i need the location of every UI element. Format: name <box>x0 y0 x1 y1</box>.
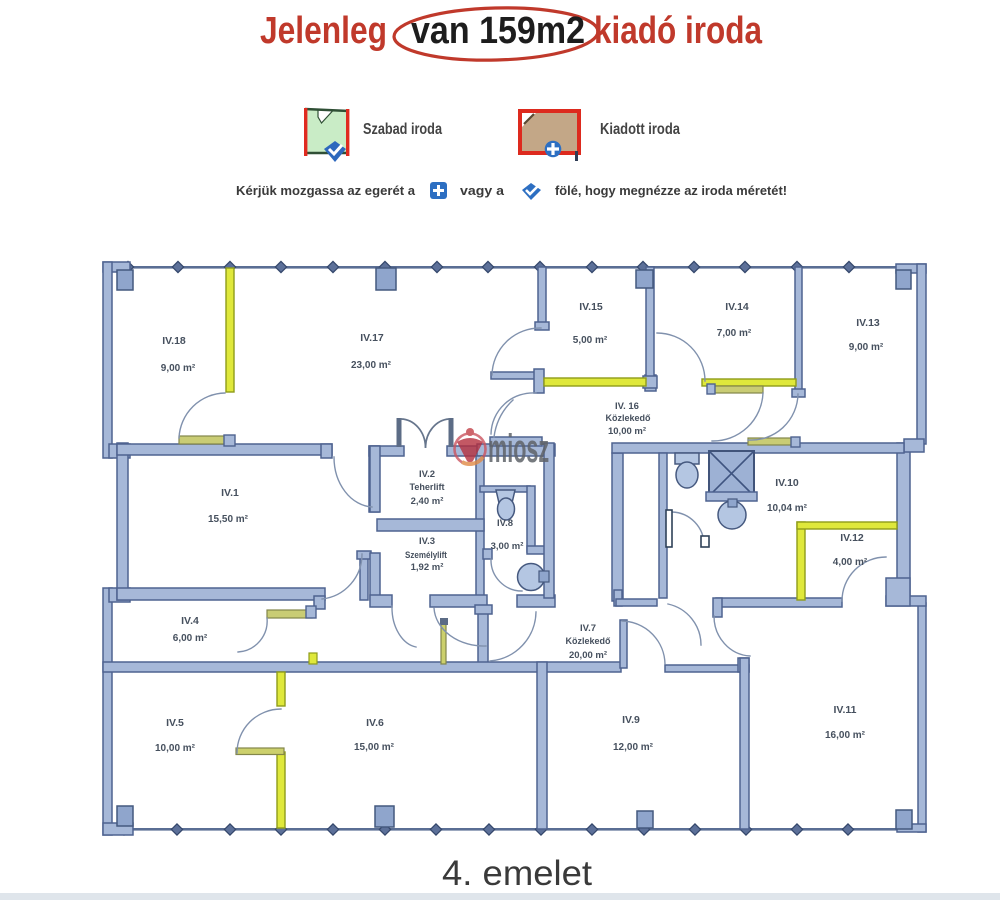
svg-text:10,00 m²: 10,00 m² <box>608 426 646 437</box>
svg-text:3,00 m²: 3,00 m² <box>491 541 524 552</box>
svg-text:15,50 m²: 15,50 m² <box>208 514 249 525</box>
svg-text:4. emelet: 4. emelet <box>442 854 592 893</box>
svg-text:5,00 m²: 5,00 m² <box>573 335 608 346</box>
svg-text:15,00 m²: 15,00 m² <box>354 742 395 753</box>
svg-text:20,00 m²: 20,00 m² <box>569 650 607 661</box>
svg-text:IV.6: IV.6 <box>366 717 384 729</box>
svg-text:kiadó iroda: kiadó iroda <box>594 10 763 52</box>
svg-text:Közlekedő: Közlekedő <box>566 636 611 646</box>
svg-text:IV.8: IV.8 <box>497 518 513 529</box>
svg-text:IV.12: IV.12 <box>840 532 864 544</box>
svg-text:van 159m2: van 159m2 <box>411 10 585 52</box>
svg-text:2,40 m²: 2,40 m² <box>411 496 444 507</box>
svg-text:IV.11: IV.11 <box>834 704 857 716</box>
svg-text:1,92 m²: 1,92 m² <box>411 562 444 573</box>
svg-text:IV.5: IV.5 <box>166 717 184 729</box>
svg-text:IV.4: IV.4 <box>181 615 199 627</box>
svg-text:12,00 m²: 12,00 m² <box>613 742 654 753</box>
svg-text:IV.15: IV.15 <box>579 301 603 313</box>
svg-text:9,00 m²: 9,00 m² <box>849 342 884 353</box>
svg-text:IV.17: IV.17 <box>360 332 384 344</box>
svg-text:23,00 m²: 23,00 m² <box>351 360 392 371</box>
svg-text:IV.14: IV.14 <box>725 301 749 313</box>
svg-text:Közlekedő: Közlekedő <box>606 413 651 423</box>
svg-text:7,00 m²: 7,00 m² <box>717 328 752 339</box>
svg-text:IV.13: IV.13 <box>856 317 880 329</box>
svg-text:IV.7: IV.7 <box>580 623 596 634</box>
svg-text:Kiadott iroda: Kiadott iroda <box>600 121 680 138</box>
svg-text:IV.2: IV.2 <box>419 469 435 480</box>
svg-text:10,04 m²: 10,04 m² <box>767 503 808 514</box>
svg-text:Szabad iroda: Szabad iroda <box>363 121 442 138</box>
svg-text:4,00 m²: 4,00 m² <box>833 557 868 568</box>
svg-text:16,00 m²: 16,00 m² <box>825 730 866 741</box>
svg-text:Jelenleg: Jelenleg <box>260 10 387 52</box>
svg-text:IV.3: IV.3 <box>419 536 435 547</box>
svg-text:IV.9: IV.9 <box>622 714 640 726</box>
svg-text:IV.1: IV.1 <box>221 487 239 499</box>
svg-text:fölé, hogy megnézze az iroda m: fölé, hogy megnézze az iroda méretét! <box>555 183 787 198</box>
svg-text:10,00 m²: 10,00 m² <box>155 743 196 754</box>
svg-text:IV.18: IV.18 <box>162 335 186 347</box>
svg-text:miosz: miosz <box>488 426 549 471</box>
svg-text:Kérjük mozgassa az egerét a: Kérjük mozgassa az egerét a <box>236 183 416 198</box>
svg-text:Teherlift: Teherlift <box>410 482 445 492</box>
svg-text:IV.10: IV.10 <box>775 477 799 489</box>
svg-text:6,00 m²: 6,00 m² <box>173 633 208 644</box>
svg-text:9,00 m²: 9,00 m² <box>161 363 196 374</box>
svg-text:IV. 16: IV. 16 <box>615 401 639 412</box>
svg-text:vagy a: vagy a <box>460 183 505 198</box>
svg-text:Személylift: Személylift <box>405 550 447 560</box>
